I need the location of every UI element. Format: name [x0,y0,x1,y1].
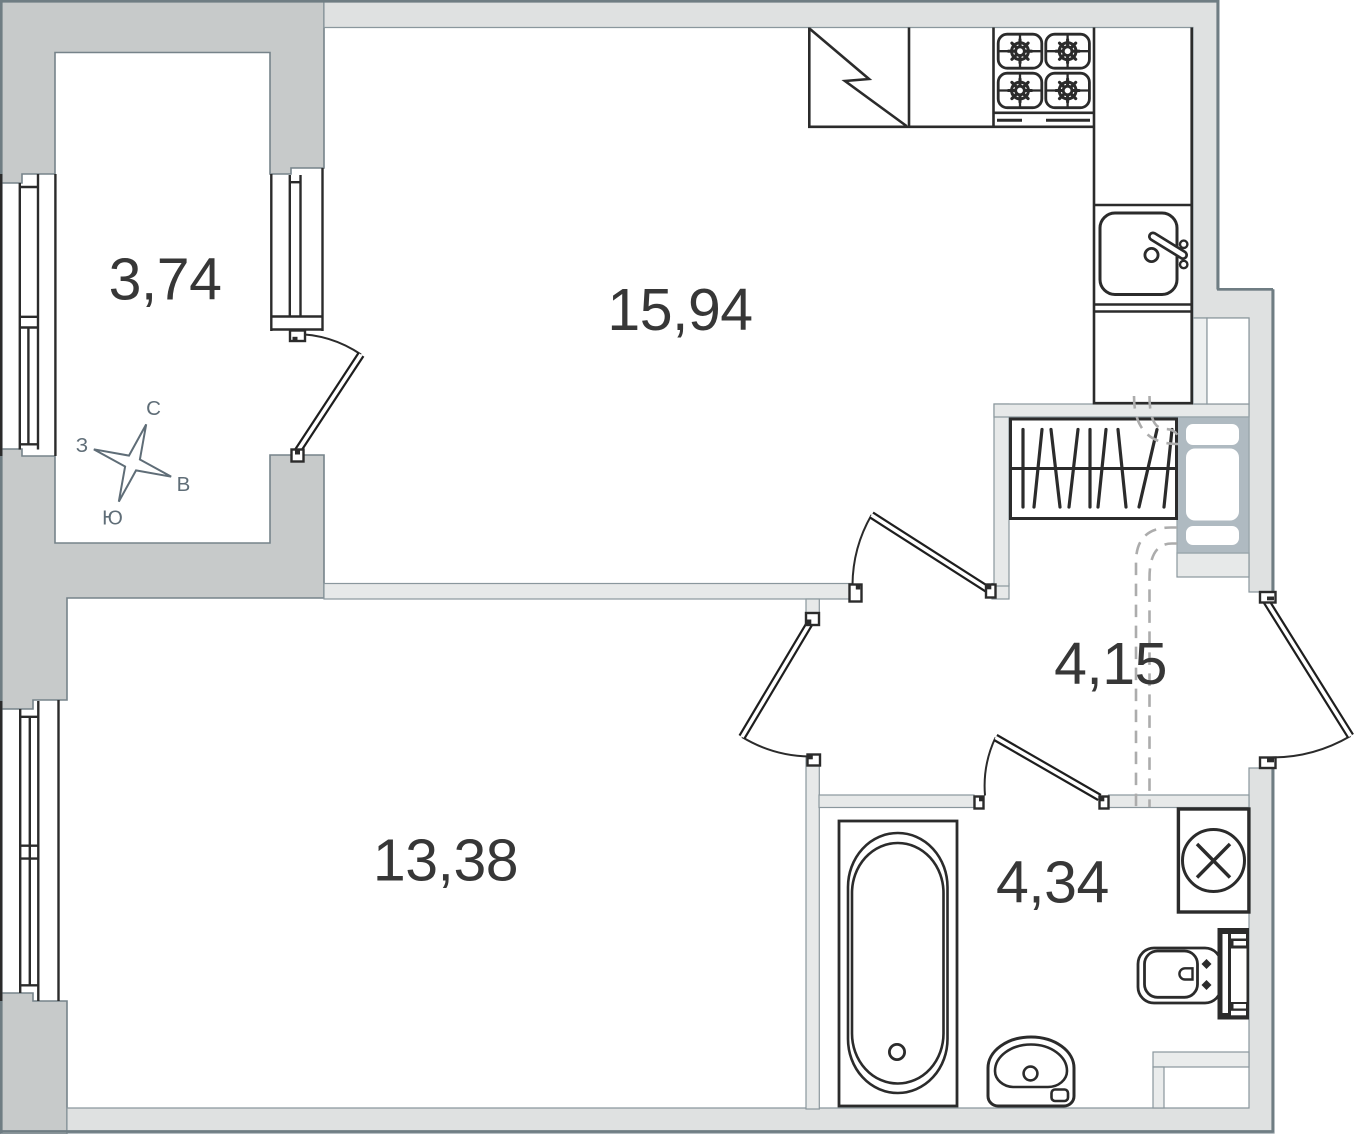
svg-text:В: В [177,473,191,496]
svg-text:З: З [76,434,88,457]
svg-text:С: С [146,397,161,420]
svg-text:3,74: 3,74 [109,247,222,313]
svg-text:4,34: 4,34 [996,850,1109,916]
svg-text:Ю: Ю [102,507,123,530]
svg-text:15,94: 15,94 [607,277,752,343]
svg-text:13,38: 13,38 [373,828,518,894]
svg-text:4,15: 4,15 [1054,631,1167,697]
